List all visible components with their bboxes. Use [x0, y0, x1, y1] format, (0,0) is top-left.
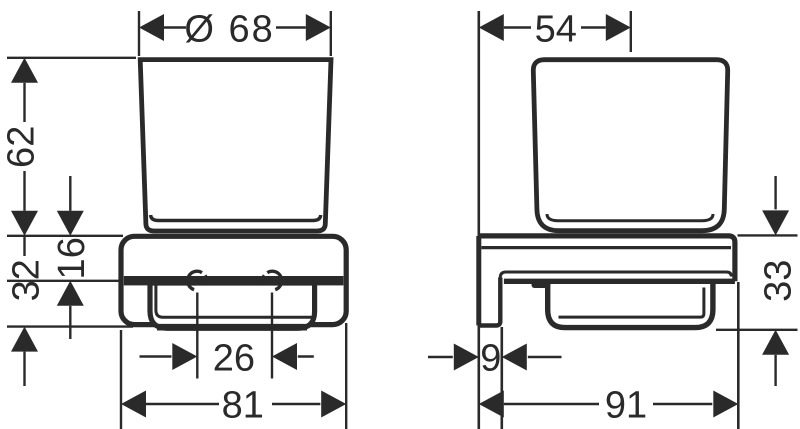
svg-text:81: 81 [222, 385, 264, 427]
svg-text:54: 54 [535, 8, 577, 50]
svg-text:16: 16 [51, 237, 93, 279]
svg-text:32: 32 [5, 259, 47, 301]
svg-text:9: 9 [480, 337, 501, 379]
svg-text:91: 91 [605, 385, 647, 427]
svg-text:Ø 68: Ø 68 [184, 8, 274, 50]
svg-text:62: 62 [1, 126, 43, 168]
svg-text:26: 26 [213, 337, 255, 379]
svg-text:33: 33 [757, 260, 799, 302]
